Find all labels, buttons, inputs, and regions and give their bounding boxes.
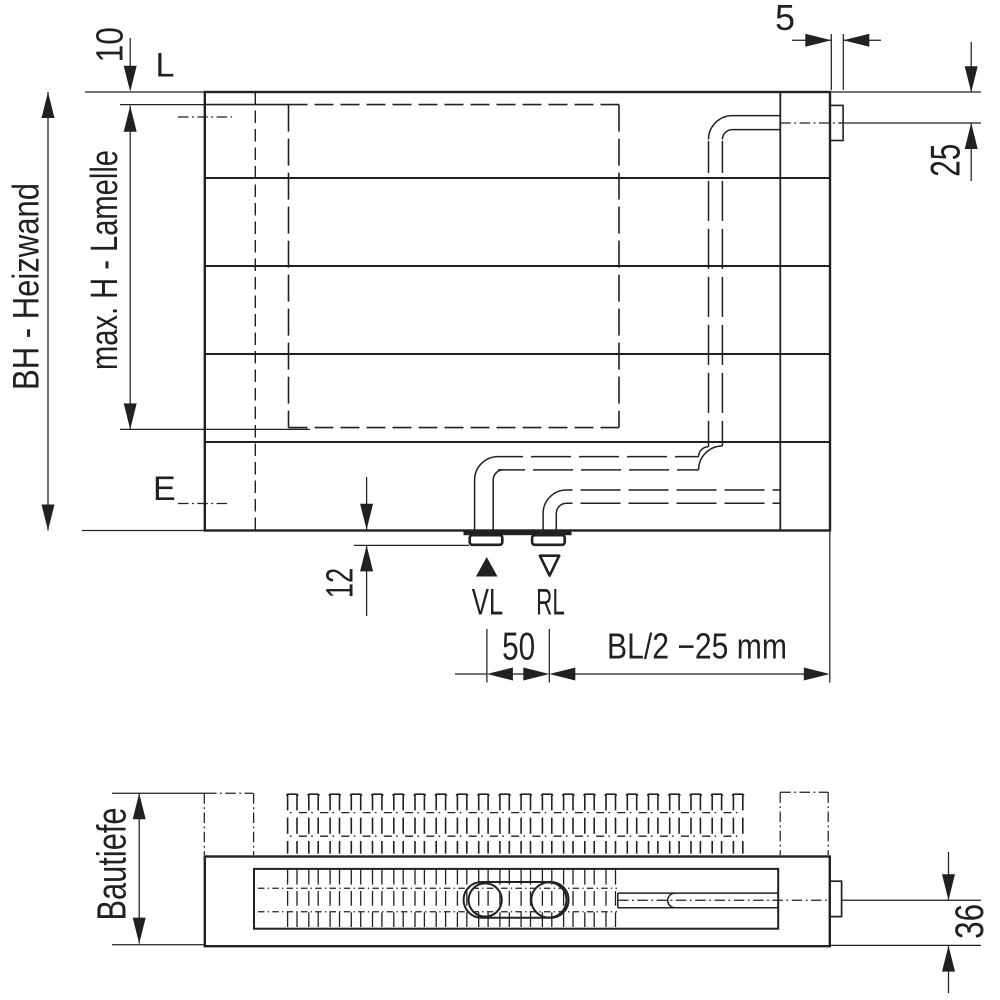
- svg-text:12: 12: [319, 568, 361, 598]
- svg-text:RL: RL: [536, 581, 565, 622]
- svg-text:max. H - Lamelle: max. H - Lamelle: [84, 150, 126, 370]
- svg-text:36: 36: [948, 904, 992, 939]
- svg-text:Bautiefe: Bautiefe: [89, 808, 135, 921]
- svg-text:VL: VL: [472, 581, 504, 622]
- svg-text:5: 5: [775, 0, 795, 38]
- svg-text:BL/2 −25 mm: BL/2 −25 mm: [607, 626, 787, 667]
- svg-text:L: L: [156, 47, 175, 85]
- svg-text:E: E: [153, 470, 176, 508]
- svg-text:10: 10: [89, 27, 131, 62]
- svg-text:BH - Heizwand: BH - Heizwand: [5, 183, 46, 390]
- svg-text:25: 25: [922, 144, 969, 177]
- svg-text:50: 50: [502, 626, 535, 669]
